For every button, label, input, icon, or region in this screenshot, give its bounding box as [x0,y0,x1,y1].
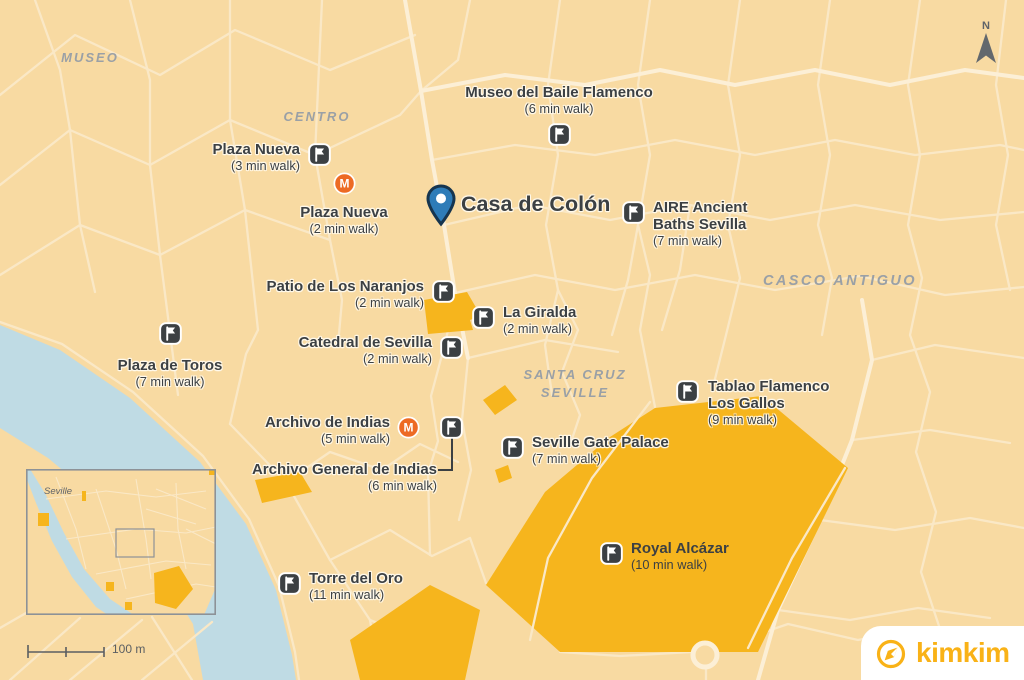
poi-tablao-flamenco-los-gallos: Tablao Flamenco Los Gallos (9 min walk) [676,378,838,428]
poi-walk-time: (7 min walk) [653,234,722,249]
metro-icon[interactable]: M [333,172,356,200]
poi-seville-gate-palace: Seville Gate Palace (7 min walk) [501,434,669,467]
poi-torre-del-oro: Torre del Oro (11 min walk) [278,570,403,603]
poi-name: Seville Gate Palace [532,434,669,451]
poi-name: Royal Alcázar [631,540,729,557]
poi-royal-alcazar: Royal Alcázar (10 min walk) [600,540,729,573]
poi-plaza-de-toros: Plaza de Toros (7 min walk) [95,322,245,390]
poi-walk-time: (6 min walk) [368,479,437,494]
compass-icon [875,638,907,670]
svg-text:M: M [404,421,414,435]
flag-icon[interactable] [440,416,463,444]
poi-name: Tablao Flamenco Los Gallos [708,378,838,412]
poi-archivo-general-de-indias: Archivo General de Indias (6 min walk) [227,461,437,494]
poi-walk-time: (7 min walk) [532,452,601,467]
poi-name: La Giralda [503,304,576,321]
poi-walk-time: (2 min walk) [310,222,379,237]
poi-name: Archivo de Indias [265,414,390,431]
north-arrow-icon [972,33,1000,65]
flag-icon[interactable] [600,542,623,570]
district-label-santa-cruz: SANTA CRUZ SEVILLE [495,366,655,401]
poi-plaza-nueva-flag: Plaza Nueva (3 min walk) [120,141,331,174]
flag-icon[interactable] [548,123,571,151]
poi-walk-time: (9 min walk) [708,413,777,428]
flag-icon[interactable] [440,336,463,364]
scale-bar-graphic [26,639,106,659]
flag-icon[interactable] [501,436,524,464]
poi-name: Plaza de Toros [118,357,223,374]
overview-inset-map: Seville [26,469,216,615]
flag-icon[interactable] [159,322,182,350]
poi-walk-time: (2 min walk) [363,352,432,367]
poi-name: Patio de Los Naranjos [266,278,424,295]
poi-name: Archivo General de Indias [252,461,437,478]
brand-name: kimkim [916,638,1010,668]
poi-name: AIRE Ancient Baths Sevilla [653,199,757,233]
poi-name: Plaza Nueva [300,204,388,221]
poi-aire-ancient-baths: AIRE Ancient Baths Sevilla (7 min walk) [622,199,757,249]
poi-walk-time: (6 min walk) [525,102,594,117]
scale-bar: 100 m [26,639,145,659]
flag-icon[interactable] [622,201,645,229]
poi-name: Catedral de Sevilla [299,334,432,351]
poi-archivo-de-indias: Archivo de Indias (5 min walk) M [205,414,463,447]
flag-icon[interactable] [308,143,331,171]
casa-de-colon-pin[interactable] [424,184,458,228]
district-label-centro: CENTRO [252,108,382,126]
district-label-museo: MUSEO [30,49,150,67]
scale-label: 100 m [112,642,145,656]
district-label-casco-antiguo: CASCO ANTIGUO [730,272,950,292]
poi-la-giralda: La Giralda (2 min walk) [472,304,576,337]
poi-walk-time: (2 min walk) [355,296,424,311]
svg-text:M: M [339,177,349,191]
flag-icon[interactable] [676,380,699,408]
poi-name: Museo del Baile Flamenco [465,84,653,101]
poi-walk-time: (10 min walk) [631,558,707,573]
map-canvas: MUSEO CENTRO CASCO ANTIGUO SANTA CRUZ SE… [0,0,1024,680]
kimkim-logo[interactable]: kimkim [861,626,1024,680]
poi-walk-time: (2 min walk) [503,322,572,337]
poi-walk-time: (7 min walk) [136,375,205,390]
poi-name: Torre del Oro [309,570,403,587]
flag-icon[interactable] [472,306,495,334]
metro-icon[interactable]: M [397,416,420,444]
poi-patio-de-los-naranjos: Patio de Los Naranjos (2 min walk) [240,278,455,311]
poi-catedral-de-sevilla: Catedral de Sevilla (2 min walk) [246,334,463,367]
inset-city-label: Seville [44,486,72,497]
poi-plaza-nueva-metro: M Plaza Nueva (2 min walk) [264,172,424,237]
poi-name: Plaza Nueva [212,141,300,158]
poi-walk-time: (5 min walk) [321,432,390,447]
flag-icon[interactable] [278,572,301,600]
north-label: N [968,20,1004,32]
poi-museo-del-baile-flamenco: Museo del Baile Flamenco (6 min walk) [409,84,709,151]
main-poi-title: Casa de Colón [461,192,610,217]
north-arrow: N [968,20,1004,70]
poi-walk-time: (11 min walk) [309,588,384,603]
flag-icon[interactable] [432,280,455,308]
